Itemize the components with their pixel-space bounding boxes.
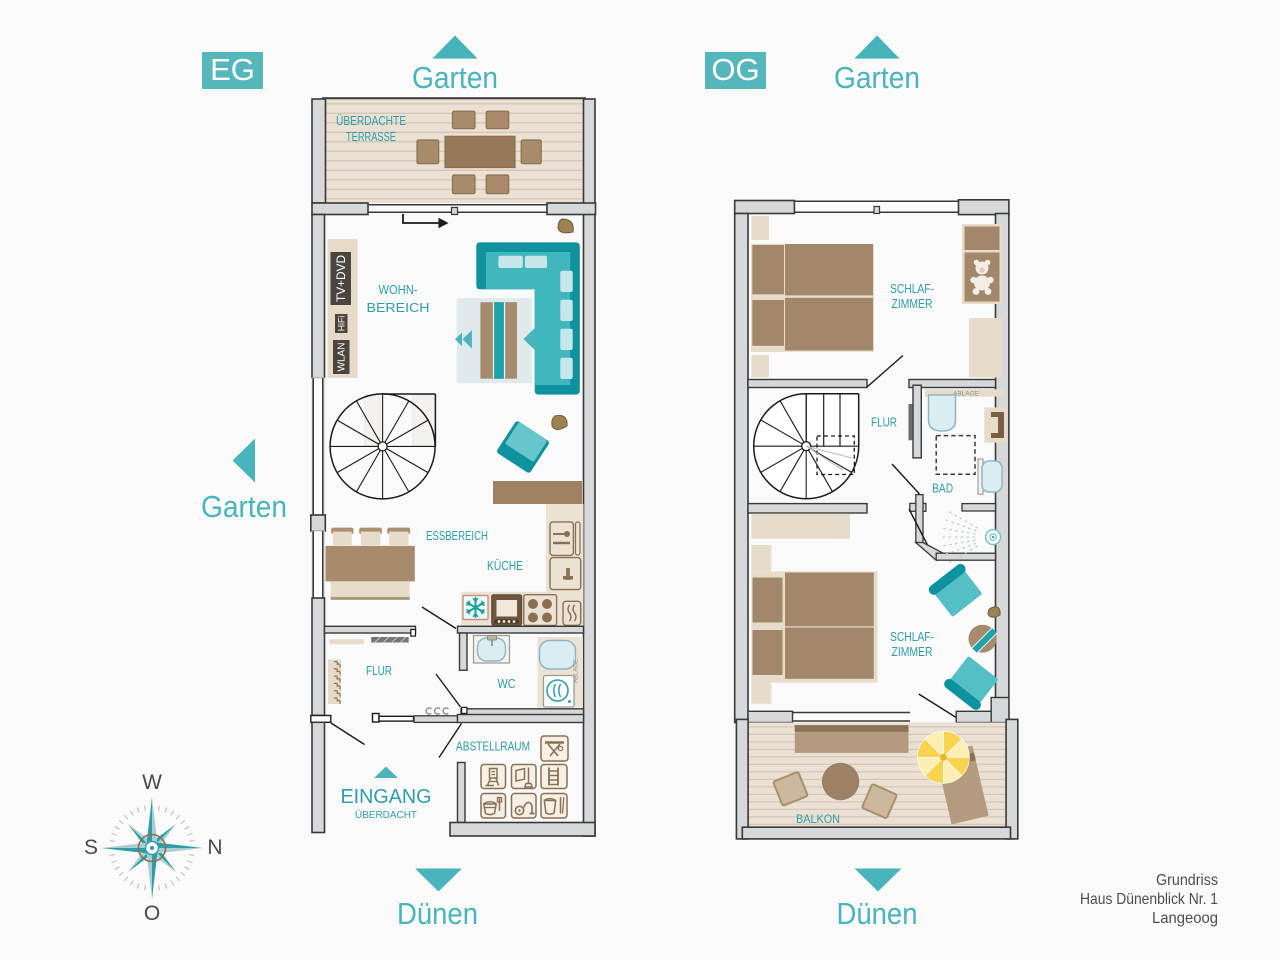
svg-text:BAD: BAD	[932, 481, 953, 496]
svg-text:Dünen: Dünen	[397, 896, 478, 931]
svg-text:ÜBERDACHT: ÜBERDACHT	[355, 809, 418, 821]
svg-text:SCHLAF-: SCHLAF-	[890, 281, 934, 296]
svg-text:BALKON: BALKON	[796, 814, 840, 826]
svg-text:TV+DVD: TV+DVD	[336, 255, 348, 302]
svg-text:WLAN: WLAN	[337, 343, 348, 372]
svg-text:ÜBERDACHTE: ÜBERDACHTE	[336, 114, 406, 128]
svg-text:Dünen: Dünen	[837, 896, 918, 931]
svg-text:FLUR: FLUR	[871, 415, 897, 430]
svg-text:O: O	[144, 902, 160, 925]
svg-text:N: N	[207, 836, 222, 859]
svg-text:W: W	[142, 771, 162, 794]
svg-text:Grundriss: Grundriss	[1156, 872, 1218, 889]
svg-text:WOHN-: WOHN-	[379, 282, 418, 297]
svg-text:ABSTELLRAUM: ABSTELLRAUM	[456, 740, 530, 754]
svg-text:KÜCHE: KÜCHE	[487, 558, 523, 573]
svg-text:ABLAGE: ABLAGE	[953, 390, 980, 397]
svg-text:HiFi: HiFi	[337, 316, 347, 332]
svg-text:Langeoog: Langeoog	[1152, 910, 1218, 927]
svg-text:Garten: Garten	[834, 60, 920, 95]
svg-text:Haus Dünenblick Nr. 1: Haus Dünenblick Nr. 1	[1080, 891, 1218, 908]
svg-text:ZIMMER: ZIMMER	[892, 644, 933, 659]
svg-text:SCHLAF-: SCHLAF-	[890, 629, 934, 644]
svg-text:EINGANG: EINGANG	[341, 786, 432, 808]
svg-text:TERRASSE: TERRASSE	[346, 130, 396, 144]
svg-text:ESSBEREICH: ESSBEREICH	[426, 528, 488, 543]
svg-text:FLUR: FLUR	[366, 663, 392, 678]
svg-text:OG: OG	[711, 52, 759, 87]
svg-text:Garten: Garten	[201, 489, 287, 524]
svg-text:ZIMMER: ZIMMER	[892, 296, 933, 311]
svg-text:Garten: Garten	[412, 60, 498, 95]
svg-text:BEREICH: BEREICH	[367, 300, 430, 315]
svg-text:EG: EG	[210, 52, 255, 87]
svg-text:WC: WC	[498, 676, 516, 691]
svg-text:S: S	[84, 836, 98, 859]
